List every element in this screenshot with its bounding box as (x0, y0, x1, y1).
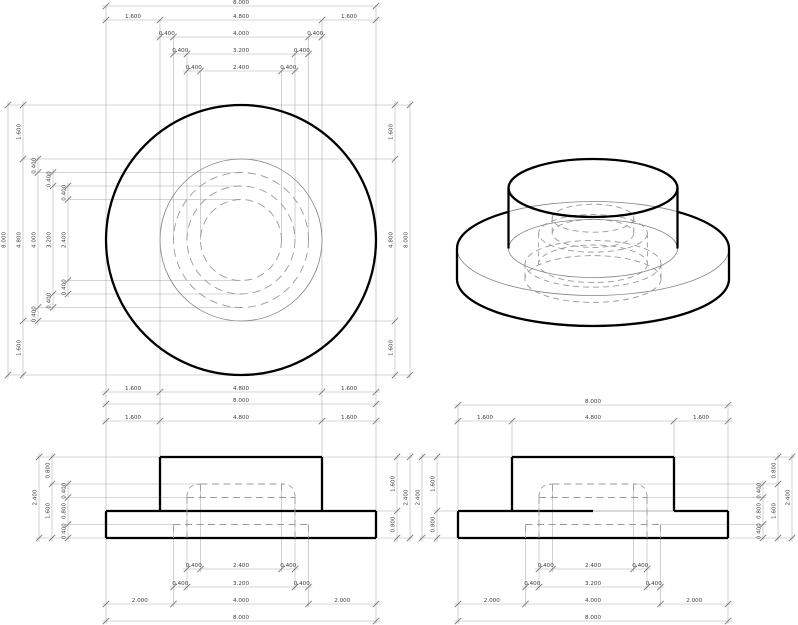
cad-drawing-page: 8.0001.6004.8001.6000.4004.0000.4000.400… (0, 0, 798, 625)
dim-label: 0.400 (538, 563, 554, 569)
dim-label: 1.600 (772, 503, 778, 519)
dim-chain-front-bottom-overall: 8.000 (102, 615, 380, 624)
dim-chain-side-bottom-overall: 8.000 (454, 615, 732, 624)
dim-chain-front-right-heights: 1.6000.800 (391, 453, 401, 542)
dim-label: 0.400 (32, 306, 38, 322)
dim-label: 1.600 (391, 476, 397, 492)
dim-label: 2.000 (132, 598, 148, 604)
hidden-cavity-circle (201, 200, 282, 281)
dim-label: 2.400 (786, 489, 792, 505)
dim-chain-plan-left-d4000: 0.4004.0000.400 (32, 155, 42, 325)
dim-label: 0.400 (646, 581, 662, 587)
dim-chain-side-right-split: 0.8001.600 (772, 453, 782, 542)
dim-chain-side-right-total: 2.400 (786, 453, 796, 542)
boss-outline-circle (160, 159, 322, 321)
dim-label: 1.600 (389, 340, 395, 356)
dim-label: 0.400 (62, 184, 68, 200)
dim-chain-plan-left-d3200: 0.4003.2000.400 (47, 169, 57, 312)
dim-label: 0.400 (524, 581, 540, 587)
dim-label: 0.400 (172, 48, 188, 54)
flange-outline-circle (106, 105, 376, 375)
dim-label: 1.600 (341, 14, 357, 20)
dim-chain-front-top-flange: 1.6004.8001.600 (102, 415, 380, 424)
dim-chain-plan-right-overall: 8.000 (404, 101, 414, 379)
dim-label: 4.800 (585, 415, 601, 421)
dim-label: 8.000 (233, 0, 249, 6)
dim-chain-plan-left-flange: 1.6004.8001.600 (17, 101, 27, 379)
dim-label: 0.400 (32, 157, 38, 173)
dim-label: 0.400 (62, 279, 68, 295)
dim-label: 0.400 (172, 581, 188, 587)
dim-label: 0.400 (62, 482, 68, 498)
cad-drawing-canvas: 8.0001.6004.8001.6000.4004.0000.4000.400… (0, 0, 798, 625)
dim-label: 3.200 (47, 232, 53, 248)
dim-label: 0.400 (294, 48, 310, 54)
dim-label: 1.600 (693, 415, 709, 421)
dim-chain-side-right-steps: 0.4000.8000.400 (757, 480, 767, 542)
dim-label: 0.400 (47, 292, 53, 308)
iso-flange-rim-right (678, 212, 730, 249)
dim-chain-plan-right-flange: 1.6004.8001.600 (389, 101, 399, 379)
dim-label: 0.400 (159, 31, 175, 37)
dim-label: 0.400 (280, 563, 296, 569)
dim-label: 1.600 (477, 415, 493, 421)
dim-label: 1.600 (125, 415, 141, 421)
dim-label: 0.800 (772, 462, 778, 478)
dim-chain-front-left-steps: 0.4000.8000.400 (62, 480, 72, 542)
dim-chain-side-left-heights: 1.6000.800 (431, 453, 441, 542)
dim-label: 0.400 (186, 563, 202, 569)
dim-chain-plan-left-overall: 8.000 (2, 101, 12, 379)
dim-label: 0.400 (186, 65, 202, 71)
dim-chain-side-bottom-d3200: 0.4003.2000.400 (522, 581, 665, 590)
dim-label: 0.400 (47, 171, 53, 187)
dim-label: 1.600 (46, 503, 52, 519)
dim-chain-side-top-overall: 8.000 (454, 399, 732, 408)
dim-label: 1.600 (341, 415, 357, 421)
dim-chain-front-left-total: 2.400 (33, 453, 43, 542)
dim-label: 2.400 (62, 232, 68, 248)
dim-label: 3.200 (233, 581, 249, 587)
dim-chain-side-left-total: 2.400 (416, 453, 426, 542)
dim-label: 4.000 (585, 598, 601, 604)
dim-label: 2.000 (334, 598, 350, 604)
dim-label: 4.000 (32, 232, 38, 248)
dim-chain-side-top-flange: 1.6004.8001.600 (454, 415, 732, 424)
dim-label: 2.400 (416, 489, 422, 505)
dim-label: 8.000 (2, 232, 8, 248)
hidden-cavity-circle (174, 173, 309, 308)
dim-label: 2.400 (33, 489, 39, 505)
dim-label: 3.200 (233, 48, 249, 54)
dim-label: 0.800 (46, 462, 52, 478)
dimension-chains: 8.0001.6004.8001.6000.4004.0000.4000.400… (2, 0, 796, 624)
dim-chain-plan-top-overall: 8.000 (102, 0, 380, 9)
dim-label: 0.800 (757, 503, 763, 519)
hidden-cavity-corner (282, 484, 296, 497)
dim-label: 1.600 (125, 14, 141, 20)
dim-label: 8.000 (233, 615, 249, 621)
dim-label: 1.600 (341, 386, 357, 392)
dim-label: 1.600 (431, 476, 437, 492)
plan-view (106, 105, 376, 375)
dim-label: 4.800 (389, 232, 395, 248)
hidden-cavity-circle (187, 186, 295, 294)
dim-label: 4.800 (233, 14, 249, 20)
dim-label: 8.000 (233, 398, 249, 404)
dim-label: 0.800 (391, 516, 397, 532)
dim-chain-plan-top-d4000: 0.4004.0000.400 (156, 31, 326, 40)
dim-label: 8.000 (585, 615, 601, 621)
dim-chain-front-bottom-d4000: 2.0004.0002.000 (102, 598, 380, 607)
dim-chain-front-right-total: 2.400 (404, 453, 414, 542)
dim-label: 0.400 (307, 31, 323, 37)
isometric-view (457, 159, 729, 326)
dim-label: 1.600 (125, 386, 141, 392)
dim-label: 4.000 (233, 598, 249, 604)
dim-chain-front-bottom-d3200: 0.4003.2000.400 (170, 581, 313, 590)
dim-label: 2.400 (585, 563, 601, 569)
dim-label: 0.400 (632, 563, 648, 569)
dim-label: 4.800 (17, 232, 23, 248)
dim-label: 2.000 (686, 598, 702, 604)
hidden-cavity-corner (187, 484, 201, 497)
dim-label: 8.000 (585, 399, 601, 405)
dim-label: 0.400 (757, 482, 763, 498)
dim-label: 3.200 (585, 581, 601, 587)
hidden-cavity-corner (539, 484, 553, 497)
dim-label: 4.800 (233, 386, 249, 392)
dim-label: 4.800 (233, 415, 249, 421)
dim-chain-plan-bottom-overall: 8.000 (102, 398, 380, 407)
dim-label: 0.400 (757, 523, 763, 539)
dim-label: 2.400 (404, 489, 410, 505)
dim-chain-side-bottom-d4000: 2.0004.0002.000 (454, 598, 732, 607)
dim-label: 4.000 (233, 31, 249, 37)
dim-label: 8.000 (404, 232, 410, 248)
iso-flange-rim-left (457, 212, 509, 249)
dim-label: 2.400 (233, 65, 249, 71)
hidden-cavity-corner (634, 484, 648, 497)
dim-label: 1.600 (389, 124, 395, 140)
dim-chain-front-left-split: 0.8001.600 (46, 453, 56, 542)
dim-label: 1.600 (17, 340, 23, 356)
dim-label: 0.400 (280, 65, 296, 71)
dim-label: 2.000 (484, 598, 500, 604)
dim-label: 0.800 (62, 503, 68, 519)
dim-label: 0.400 (294, 581, 310, 587)
dim-label: 0.800 (431, 516, 437, 532)
dim-chain-plan-top-d3200: 0.4003.2000.400 (170, 48, 313, 57)
dim-chain-plan-top-flange: 1.6004.8001.600 (102, 14, 380, 23)
dim-label: 2.400 (233, 563, 249, 569)
dim-chain-plan-bottom-flange: 1.6004.8001.600 (102, 386, 380, 395)
dim-label: 1.600 (17, 124, 23, 140)
dim-label: 0.400 (62, 523, 68, 539)
